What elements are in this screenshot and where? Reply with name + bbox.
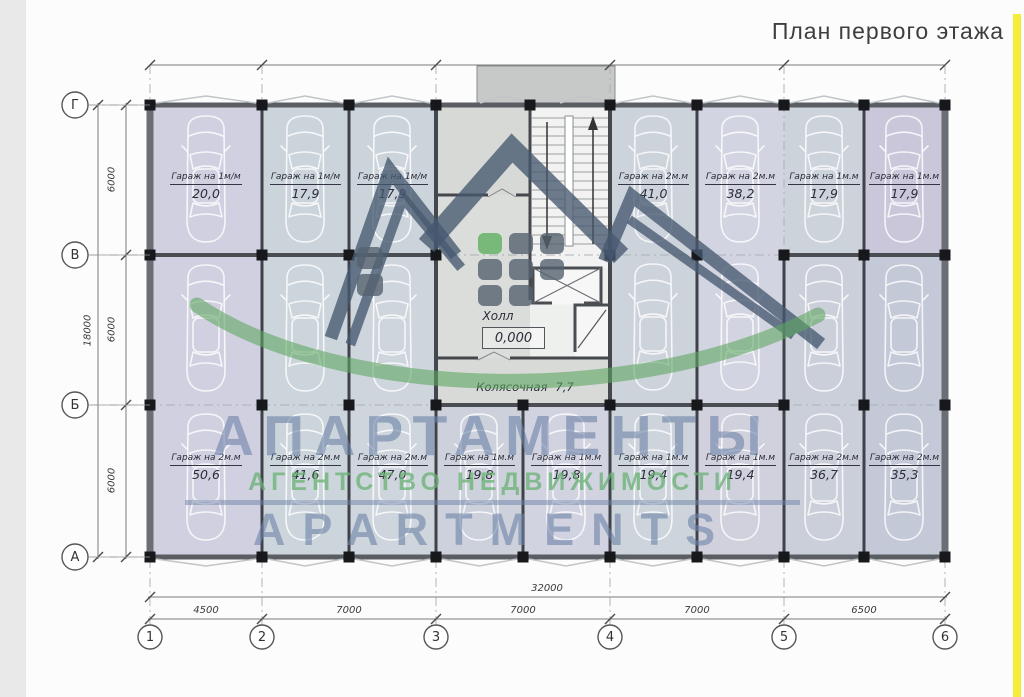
garage-label: Гараж на 2м.м 38,2 xyxy=(697,172,784,202)
axis-label-g: Г xyxy=(62,98,88,113)
axis-label-a: А xyxy=(62,550,88,565)
garage-label: Гараж на 1м/м 20,0 xyxy=(150,172,262,202)
dim-segment: 6000 xyxy=(107,461,118,501)
garage-label: Гараж на 2м.м 36,7 xyxy=(784,453,864,483)
garage-label: Гараж на 1м.м 19,4 xyxy=(610,453,697,483)
stroller-room-label: Колясочная7,7 xyxy=(440,380,610,394)
garage-label: Гараж на 2м.м 47,0 xyxy=(349,453,436,483)
level-mark: 0,000 xyxy=(482,327,545,349)
dim-segment: 7000 xyxy=(309,605,389,616)
garage-label: Гараж на 2м.м 50,6 xyxy=(150,453,262,483)
garage-label: Гараж на 1м/м 17,9 xyxy=(349,172,436,202)
garage-label: Гараж на 1м.м 19,4 xyxy=(697,453,784,483)
garage-label: Гараж на 1м.м 17,9 xyxy=(784,172,864,202)
garage-label: Гараж на 2м.м 41,0 xyxy=(610,172,697,202)
axis-label-b: Б xyxy=(62,398,88,413)
dim-segment: 6000 xyxy=(107,310,118,350)
garage-label: Гараж на 1м.м 19,8 xyxy=(436,453,523,483)
axis-label-6: 6 xyxy=(932,630,958,645)
garage-label: Гараж на 1м.м 19,8 xyxy=(523,453,610,483)
dim-total-width: 32000 xyxy=(487,583,607,594)
dim-total-height: 18000 xyxy=(83,307,94,355)
hall-label: Холл xyxy=(462,309,534,323)
garage-label: Гараж на 2м.м 41,6 xyxy=(262,453,349,483)
axis-label-1: 1 xyxy=(137,630,163,645)
axis-label-5: 5 xyxy=(771,630,797,645)
dim-segment: 6000 xyxy=(107,160,118,200)
axis-label-3: 3 xyxy=(423,630,449,645)
dim-segment: 7000 xyxy=(657,605,737,616)
garage-label: Гараж на 1м/м 17,9 xyxy=(262,172,349,202)
elevator-shaft xyxy=(533,268,601,303)
axis-leader-lines xyxy=(88,105,150,557)
floor-plan-screenshot: План первого этажа xyxy=(0,0,1024,697)
garage-label: Гараж на 2м.м 35,3 xyxy=(864,453,945,483)
dim-segment: 6500 xyxy=(824,605,904,616)
dim-segment: 7000 xyxy=(483,605,563,616)
dim-segment: 4500 xyxy=(166,605,246,616)
garage-label: Гараж на 1м.м 17,9 xyxy=(864,172,945,202)
axis-label-2: 2 xyxy=(249,630,275,645)
axis-label-4: 4 xyxy=(597,630,623,645)
axis-label-v: В xyxy=(62,248,88,263)
